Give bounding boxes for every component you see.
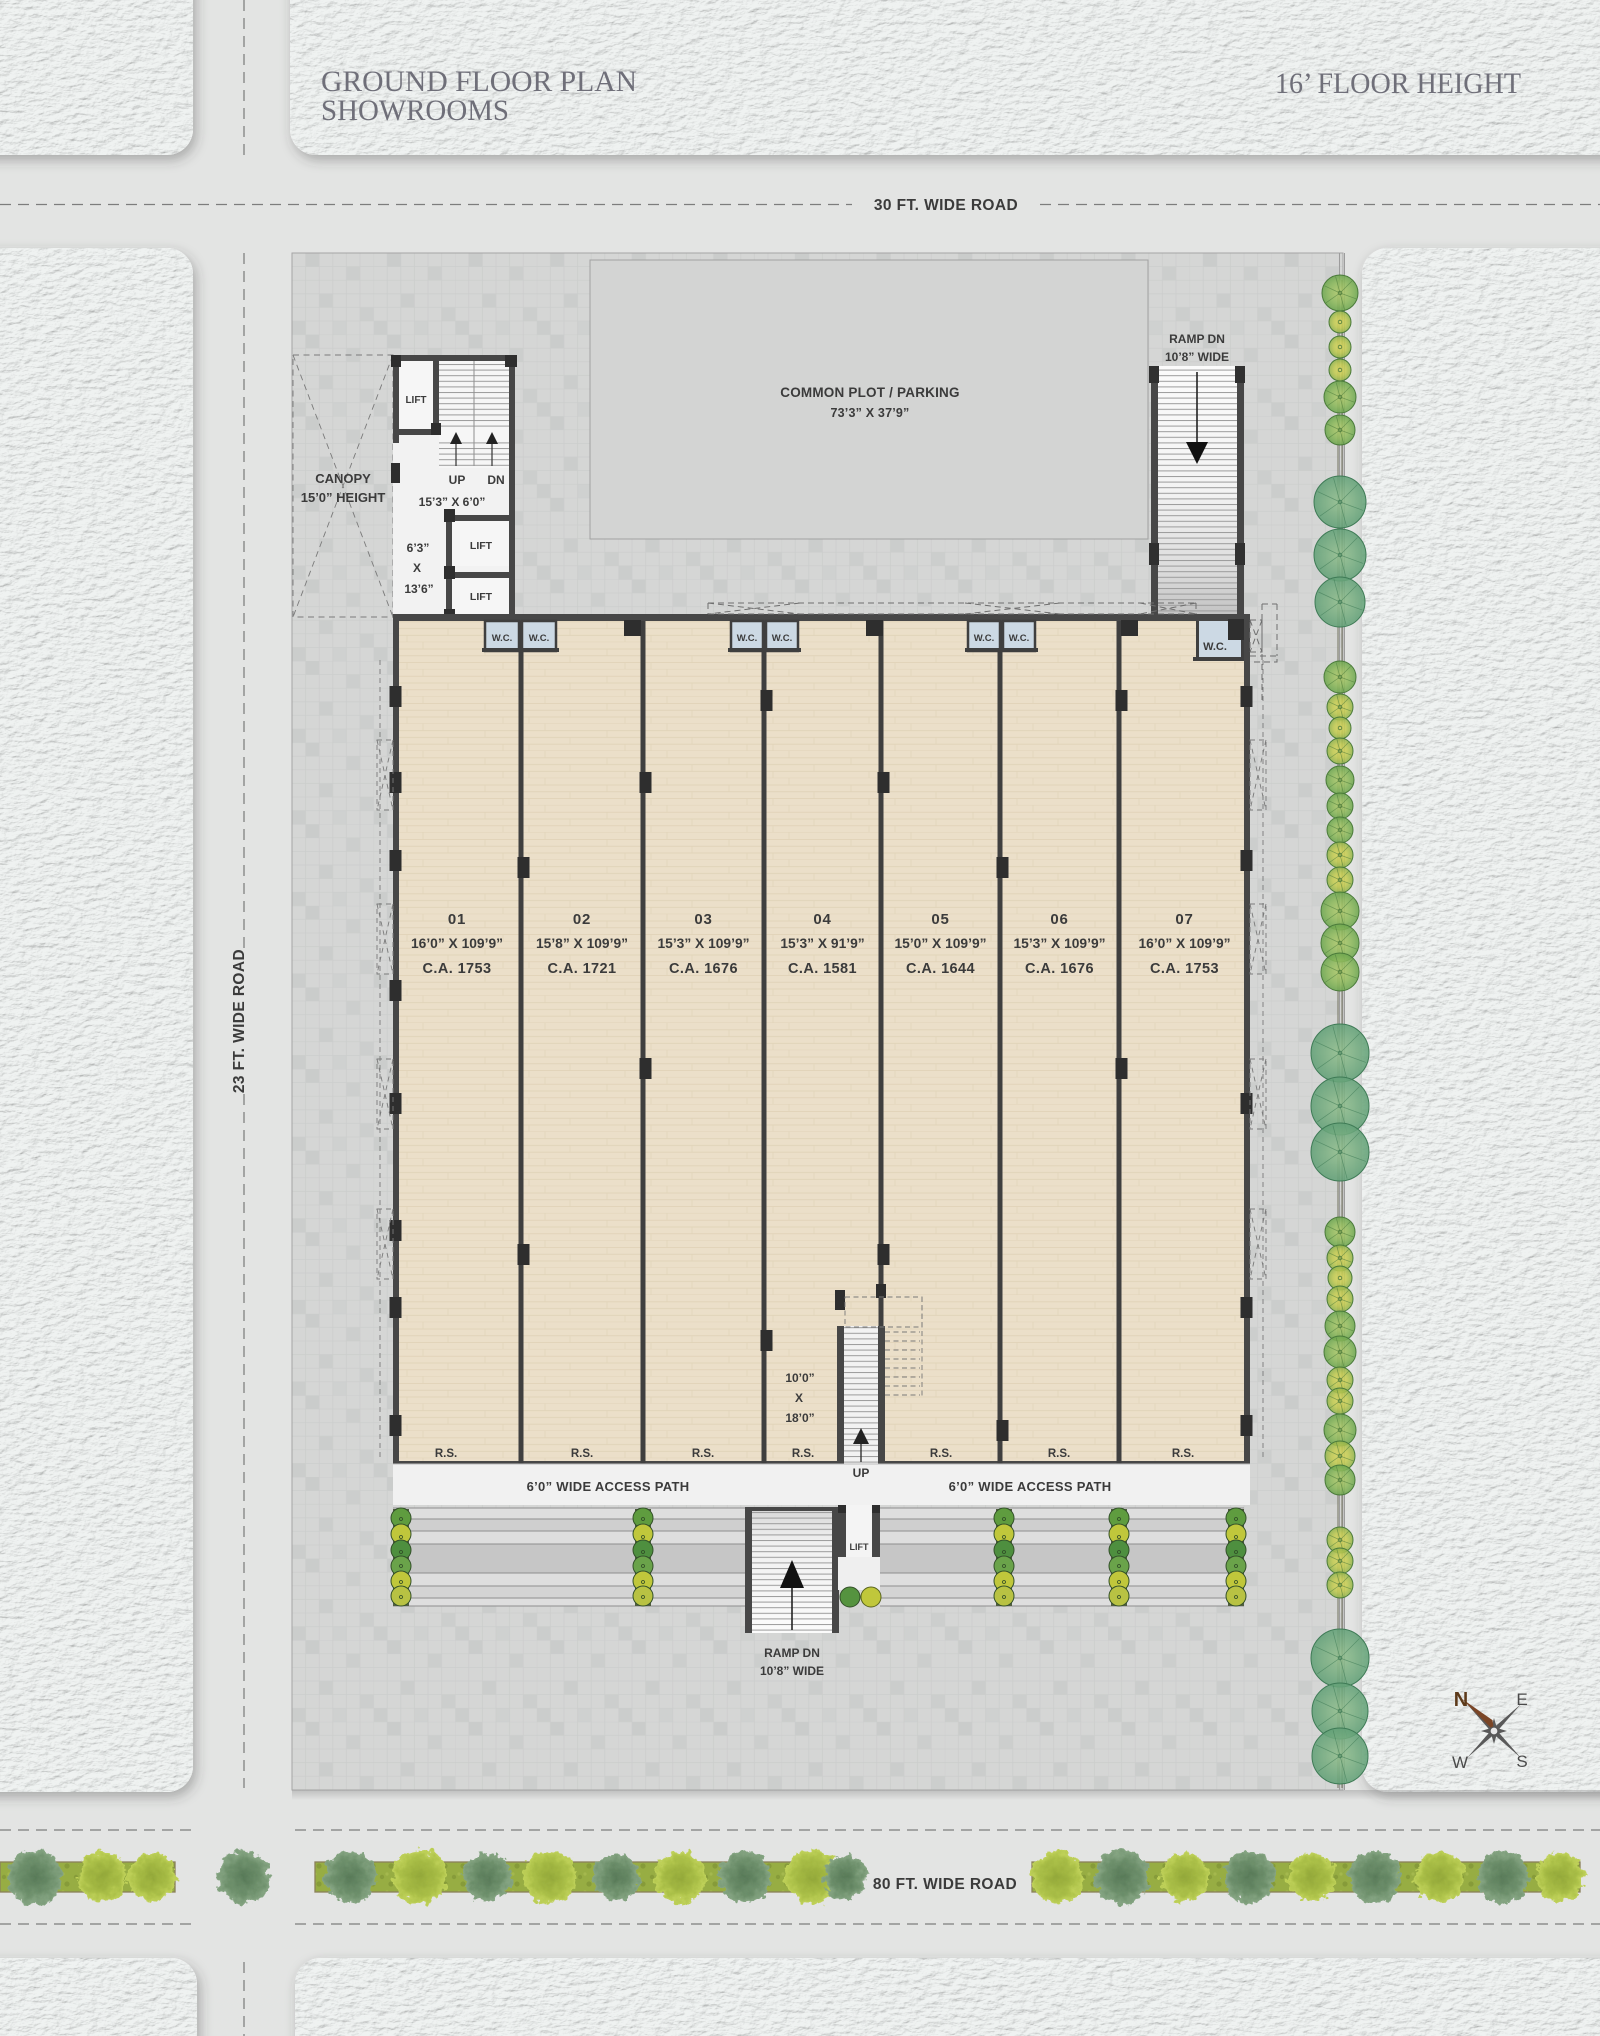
svg-text:16’0” X 109’9”: 16’0” X 109’9” (411, 936, 503, 951)
svg-text:6’3”: 6’3” (407, 541, 430, 555)
svg-text:10’8” WIDE: 10’8” WIDE (1165, 350, 1229, 364)
svg-text:X: X (795, 1391, 803, 1405)
svg-text:13’6”: 13’6” (404, 582, 433, 596)
svg-text:03: 03 (694, 911, 712, 928)
svg-text:RAMP DN: RAMP DN (764, 1646, 820, 1660)
svg-text:R.S.: R.S. (1172, 1448, 1194, 1460)
svg-text:CANOPY: CANOPY (315, 471, 371, 486)
svg-text:SHOWROOMS: SHOWROOMS (321, 94, 509, 127)
svg-text:18’0”: 18’0” (785, 1411, 814, 1425)
svg-text:10’8” WIDE: 10’8” WIDE (760, 1664, 824, 1678)
svg-text:C.A. 1676: C.A. 1676 (669, 961, 738, 977)
svg-text:01: 01 (448, 911, 466, 928)
svg-text:DN: DN (487, 473, 504, 487)
svg-text:73’3” X 37’9”: 73’3” X 37’9” (830, 406, 909, 420)
svg-text:02: 02 (573, 911, 591, 928)
svg-text:LIFT: LIFT (850, 1542, 869, 1552)
svg-text:W.C.: W.C. (772, 633, 793, 644)
svg-text:04: 04 (813, 911, 831, 928)
svg-text:15’3” X 6’0”: 15’3” X 6’0” (419, 495, 486, 509)
svg-text:COMMON PLOT / PARKING: COMMON PLOT / PARKING (780, 385, 959, 400)
svg-text:15’8” X 109’9”: 15’8” X 109’9” (536, 936, 628, 951)
svg-text:R.S.: R.S. (930, 1448, 952, 1460)
svg-text:C.A. 1753: C.A. 1753 (423, 961, 492, 977)
svg-text:R.S.: R.S. (1048, 1448, 1070, 1460)
svg-text:16’ FLOOR HEIGHT: 16’ FLOOR HEIGHT (1275, 67, 1521, 100)
svg-text:X: X (413, 561, 421, 575)
svg-text:C.A. 1753: C.A. 1753 (1150, 961, 1219, 977)
svg-text:16’0” X 109’9”: 16’0” X 109’9” (1138, 936, 1230, 951)
svg-text:15’0” X 109’9”: 15’0” X 109’9” (894, 936, 986, 951)
svg-text:06: 06 (1050, 911, 1068, 928)
svg-text:80 FT. WIDE ROAD: 80 FT. WIDE ROAD (873, 1876, 1017, 1893)
svg-text:15’0” HEIGHT: 15’0” HEIGHT (301, 490, 386, 505)
svg-text:UP: UP (449, 473, 466, 487)
svg-text:W.C.: W.C. (492, 633, 513, 644)
svg-text:R.S.: R.S. (692, 1448, 714, 1460)
svg-text:15’3” X 91’9”: 15’3” X 91’9” (780, 936, 864, 951)
svg-text:6’0” WIDE ACCESS PATH: 6’0” WIDE ACCESS PATH (949, 1479, 1112, 1494)
svg-text:C.A. 1581: C.A. 1581 (788, 961, 857, 977)
svg-text:R.S.: R.S. (435, 1448, 457, 1460)
svg-text:UP: UP (853, 1466, 870, 1480)
svg-text:LIFT: LIFT (405, 395, 426, 406)
svg-text:W: W (1452, 1753, 1468, 1772)
svg-text:RAMP DN: RAMP DN (1169, 332, 1225, 346)
svg-text:W.C.: W.C. (1203, 641, 1227, 653)
svg-text:23 FT. WIDE ROAD: 23 FT. WIDE ROAD (231, 949, 248, 1093)
svg-text:W.C.: W.C. (529, 633, 550, 644)
svg-text:S: S (1516, 1752, 1527, 1771)
svg-text:R.S.: R.S. (571, 1448, 593, 1460)
svg-text:15’3” X 109’9”: 15’3” X 109’9” (657, 936, 749, 951)
svg-text:C.A. 1644: C.A. 1644 (906, 961, 975, 977)
svg-text:6’0” WIDE ACCESS PATH: 6’0” WIDE ACCESS PATH (527, 1479, 690, 1494)
svg-text:LIFT: LIFT (470, 591, 493, 603)
svg-text:W.C.: W.C. (1009, 633, 1030, 644)
svg-text:10’0”: 10’0” (785, 1371, 814, 1385)
svg-text:30 FT. WIDE ROAD: 30 FT. WIDE ROAD (874, 197, 1018, 214)
svg-text:05: 05 (931, 911, 949, 928)
svg-text:E: E (1516, 1690, 1527, 1709)
svg-text:C.A. 1721: C.A. 1721 (548, 961, 617, 977)
svg-text:LIFT: LIFT (470, 540, 493, 552)
svg-text:W.C.: W.C. (974, 633, 995, 644)
svg-text:07: 07 (1175, 911, 1193, 928)
svg-text:C.A. 1676: C.A. 1676 (1025, 961, 1094, 977)
svg-text:15’3” X 109’9”: 15’3” X 109’9” (1013, 936, 1105, 951)
svg-text:W.C.: W.C. (737, 633, 758, 644)
svg-text:R.S.: R.S. (792, 1448, 814, 1460)
svg-text:N: N (1454, 1689, 1468, 1711)
